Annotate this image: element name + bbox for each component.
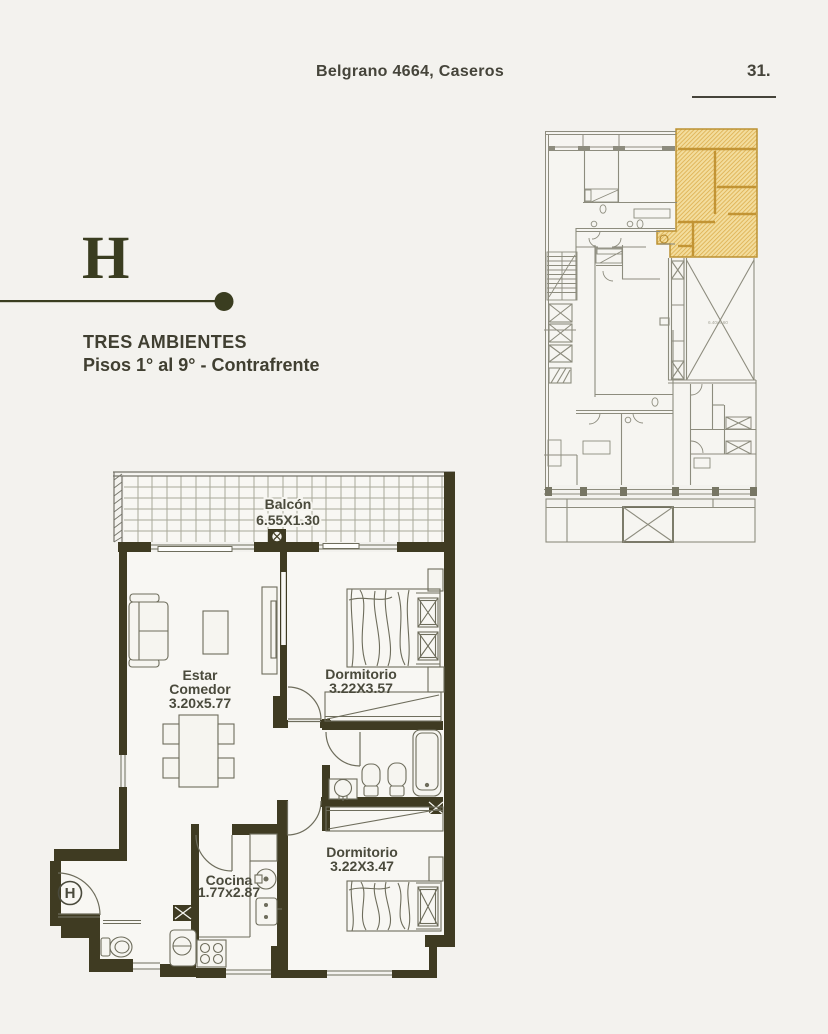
- svg-text:H: H: [65, 885, 76, 902]
- svg-text:31.: 31.: [747, 61, 771, 80]
- svg-text:1.77x2.87: 1.77x2.87: [198, 884, 260, 900]
- svg-text:3.20x5.77: 3.20x5.77: [169, 695, 231, 711]
- svg-text:6.40x9.60: 6.40x9.60: [708, 320, 728, 325]
- svg-text:3.22X3.47: 3.22X3.47: [330, 858, 394, 874]
- svg-text:Belgrano 4664, Caseros: Belgrano 4664, Caseros: [316, 63, 504, 80]
- svg-text:Balcón: Balcón: [265, 496, 312, 512]
- svg-text:6.55X1.30: 6.55X1.30: [256, 512, 320, 528]
- svg-text:Pisos 1° al 9° - Contrafrente: Pisos 1° al 9° - Contrafrente: [83, 355, 319, 375]
- svg-text:TRES AMBIENTES: TRES AMBIENTES: [83, 332, 247, 352]
- svg-text:3.22X3.57: 3.22X3.57: [329, 680, 393, 696]
- svg-text:H: H: [82, 225, 129, 292]
